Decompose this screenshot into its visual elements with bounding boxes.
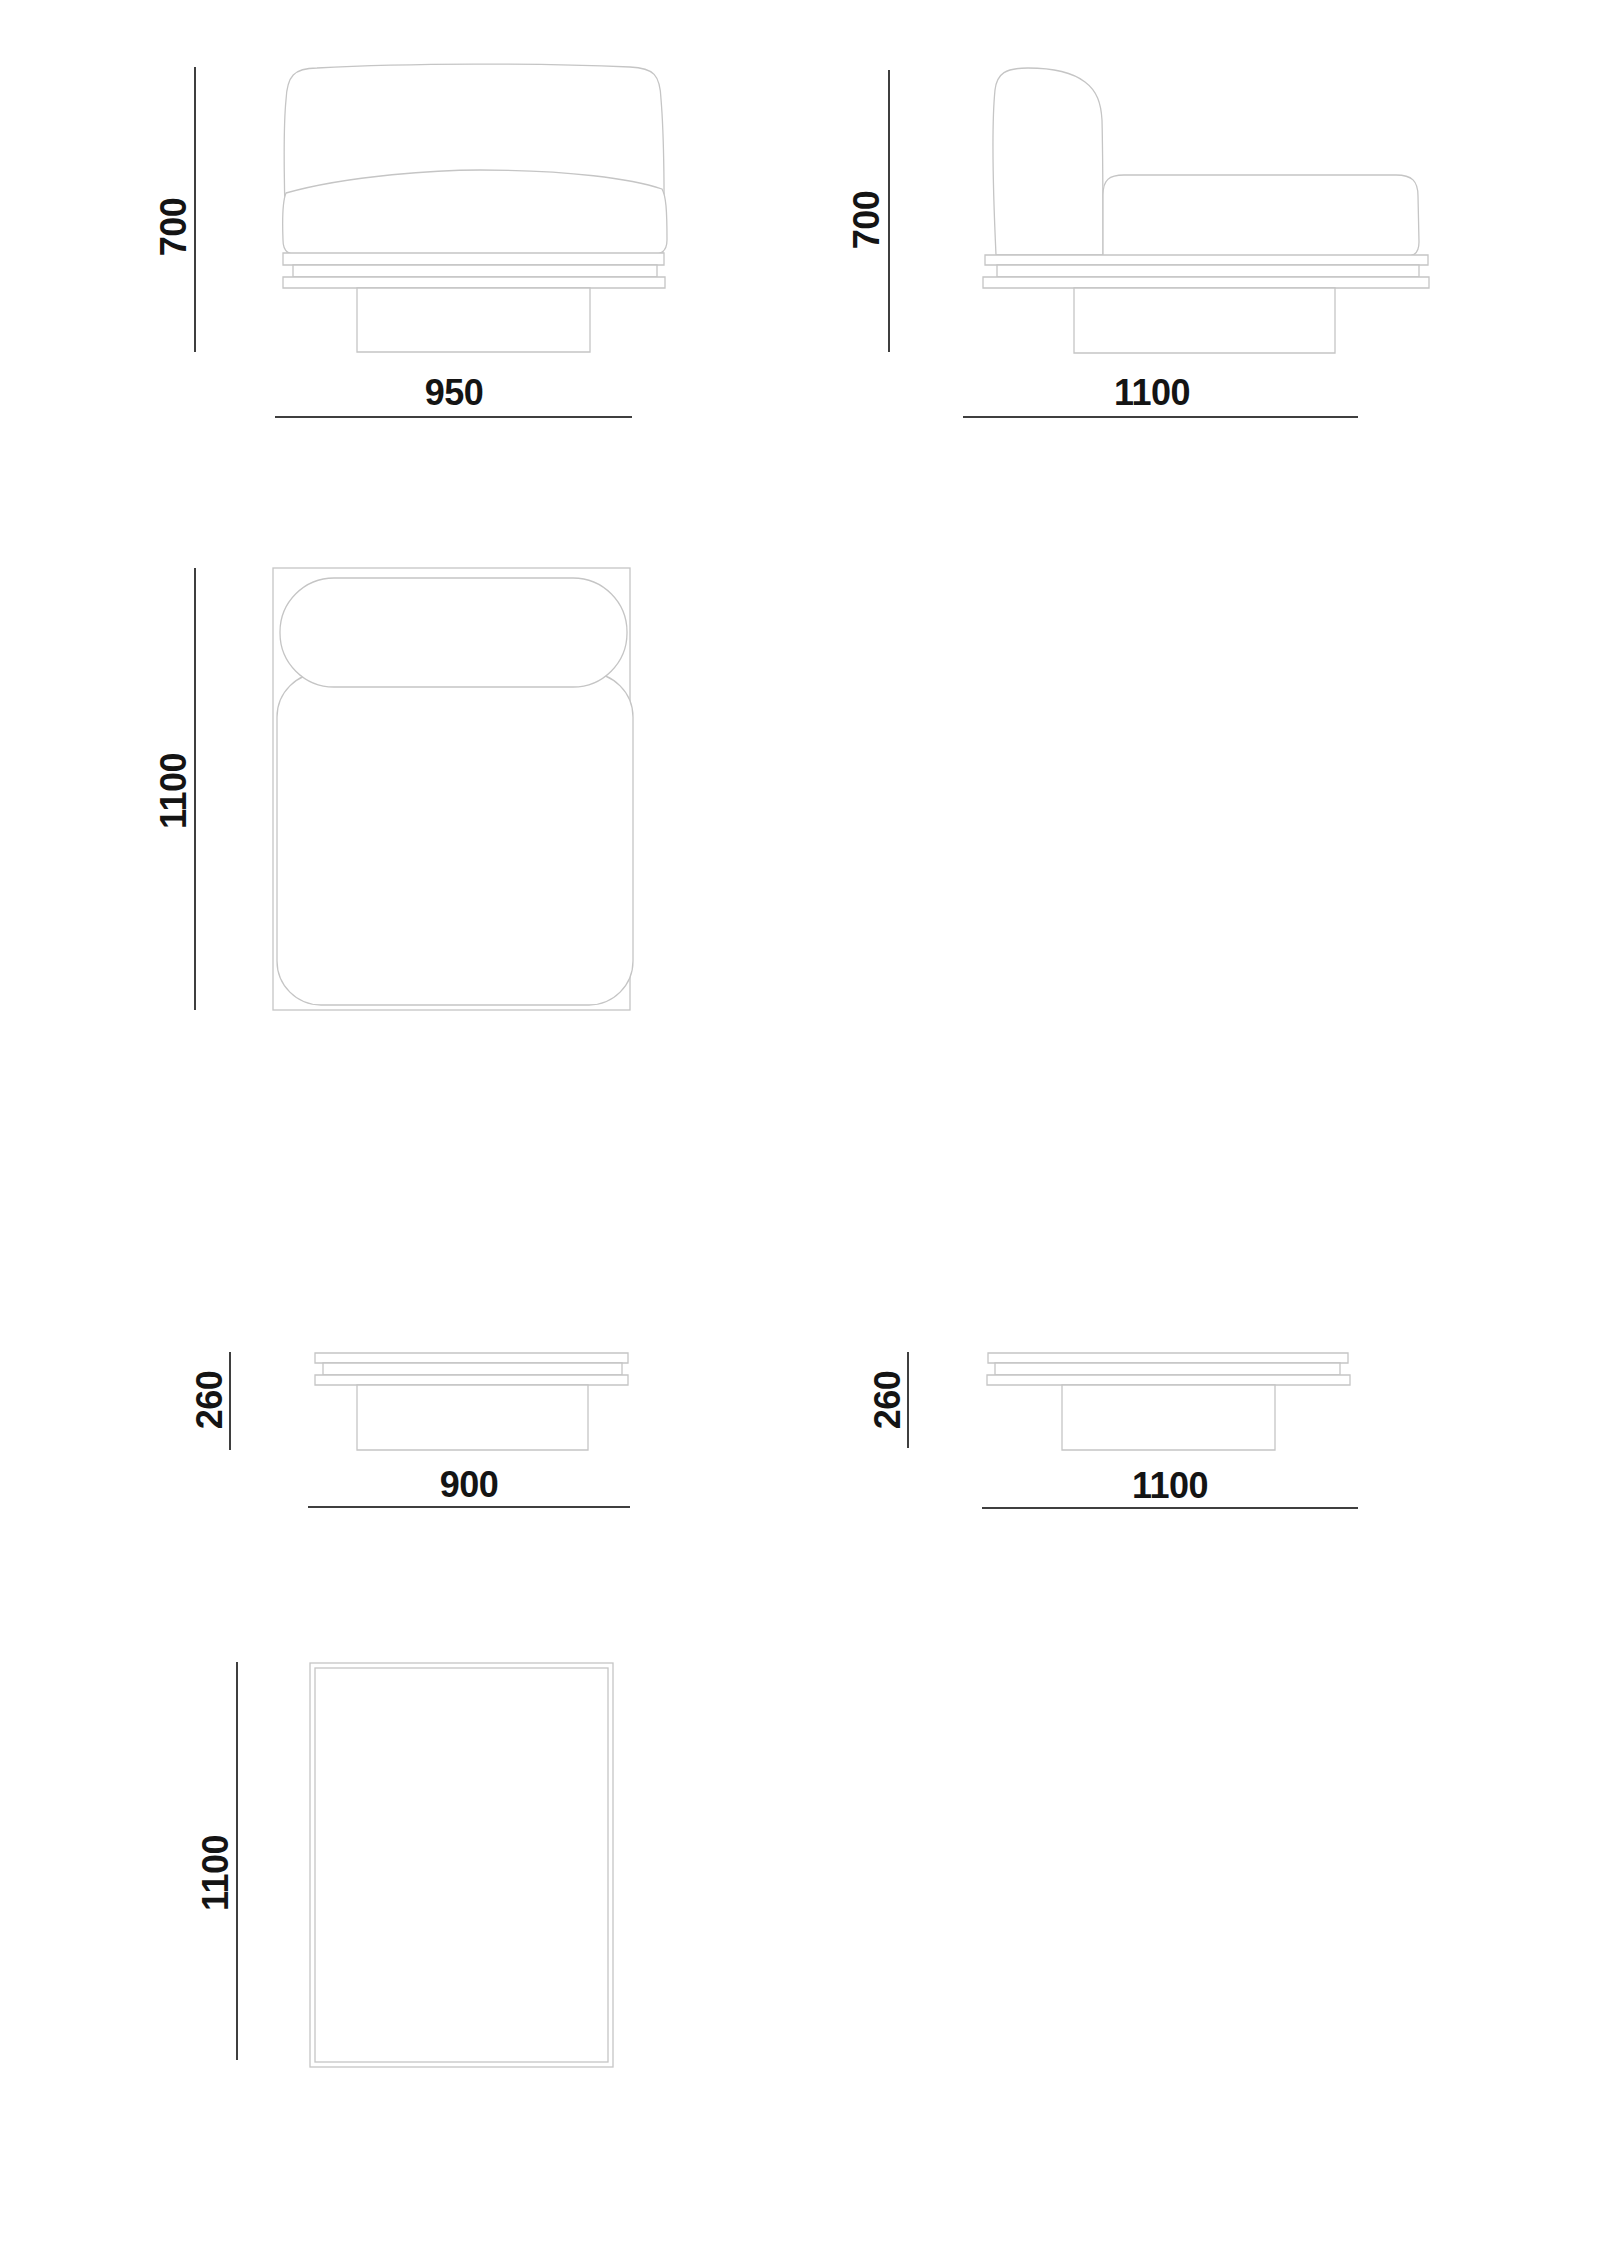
chair-top-view: 1100 — [153, 568, 634, 1010]
chair-front-plinth-base — [357, 288, 590, 352]
chair-side-backrest — [993, 68, 1103, 255]
table-front-width-label: 900 — [440, 1464, 499, 1505]
table-top-depth-label: 1100 — [195, 1835, 236, 1911]
chair-top-depth-label: 1100 — [153, 753, 194, 829]
chair-front-width-label: 950 — [425, 372, 484, 413]
chair-front-platform-middle-slab — [293, 265, 657, 277]
chair-front-platform-bottom-slab — [283, 277, 665, 288]
chair-top-backrest-pill — [280, 578, 627, 687]
chair-front-platform-top-slab — [283, 253, 664, 265]
drawing-sheet: 700 950 700 1100 1100 — [0, 0, 1600, 2262]
chair-side-plinth-base — [1074, 288, 1335, 353]
table-front-top-slab — [315, 1353, 628, 1363]
table-side-top-slab — [988, 1353, 1348, 1363]
dimension-drawing: 700 950 700 1100 1100 — [0, 0, 1600, 2262]
table-side-view: 260 1100 — [867, 1352, 1359, 1508]
table-top-outer-outline — [310, 1663, 613, 2067]
chair-side-height-label: 700 — [846, 191, 887, 250]
chair-side-platform-bottom-slab — [983, 277, 1429, 288]
table-front-plinth-base — [357, 1385, 588, 1450]
chair-side-view: 700 1100 — [846, 68, 1430, 417]
table-front-height-label: 260 — [189, 1371, 230, 1430]
chair-side-platform-middle-slab — [997, 265, 1419, 277]
table-side-depth-label: 1100 — [1132, 1465, 1208, 1506]
table-side-middle-slab — [995, 1363, 1340, 1375]
chair-front-seat-cushion — [283, 170, 667, 255]
chair-side-depth-label: 1100 — [1114, 372, 1190, 413]
chair-top-seat-cushion — [277, 673, 633, 1005]
chair-front-view: 700 950 — [153, 64, 668, 417]
table-side-plinth-base — [1062, 1385, 1275, 1450]
table-top-view: 1100 — [195, 1662, 614, 2067]
table-top-inner-outline — [315, 1668, 608, 2062]
table-front-bottom-slab — [315, 1375, 628, 1385]
chair-side-platform-top-slab — [985, 255, 1428, 265]
table-front-middle-slab — [323, 1363, 622, 1375]
table-side-bottom-slab — [987, 1375, 1350, 1385]
chair-side-seat-cushion — [1103, 175, 1419, 257]
table-front-view: 260 900 — [189, 1352, 631, 1507]
chair-front-height-label: 700 — [153, 198, 194, 257]
table-side-height-label: 260 — [867, 1371, 908, 1430]
